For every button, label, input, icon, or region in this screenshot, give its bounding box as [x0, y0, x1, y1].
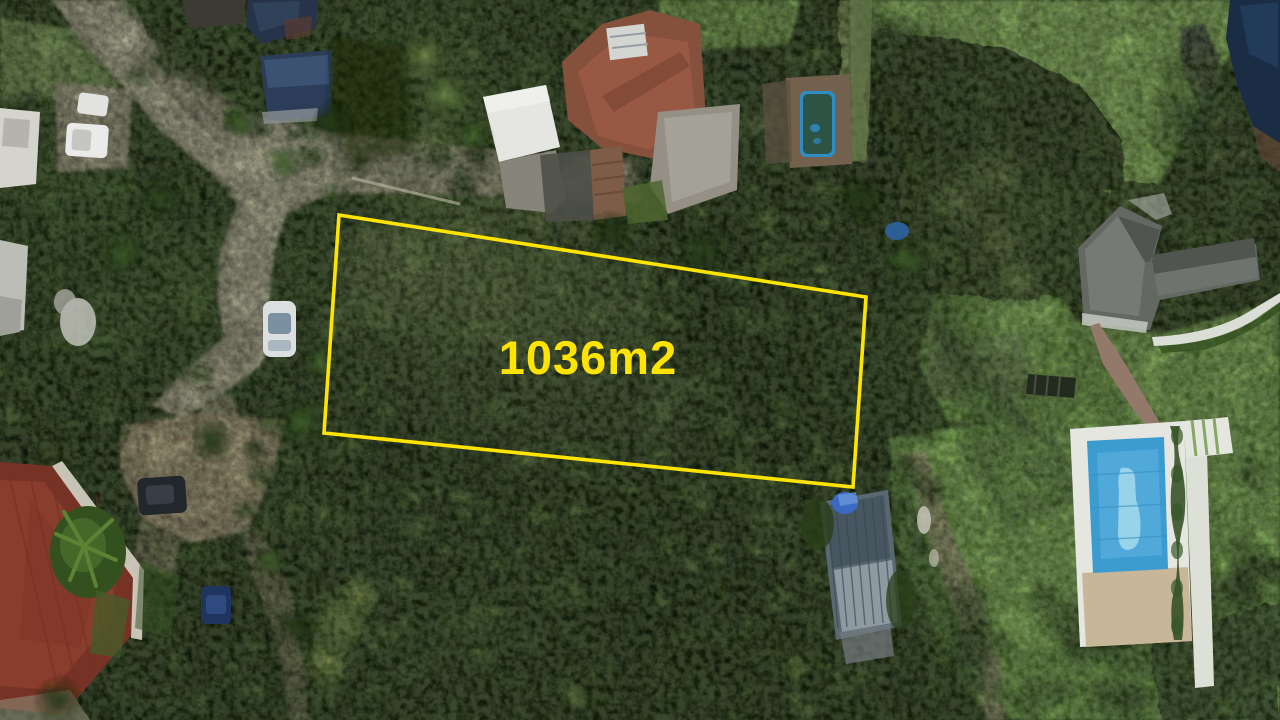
svg-text:1036m2: 1036m2	[499, 331, 678, 384]
